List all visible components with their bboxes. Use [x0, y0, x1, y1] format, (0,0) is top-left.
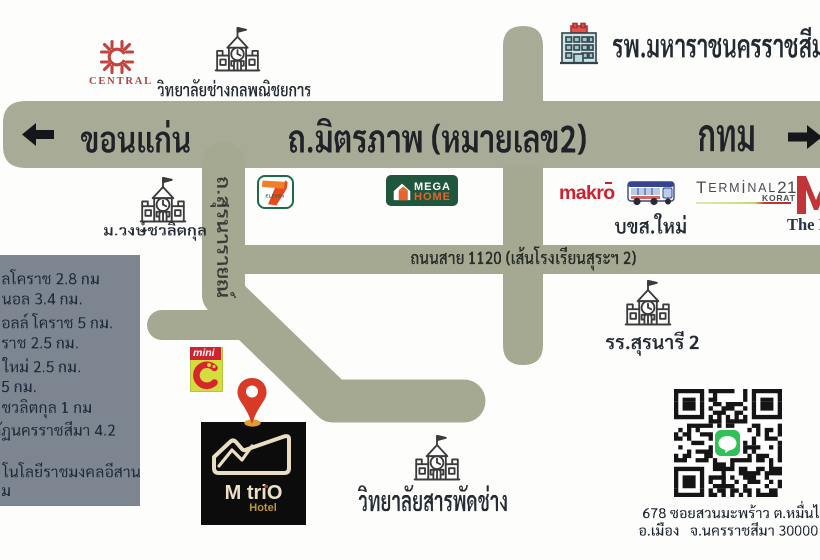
svg-text:ELEVEn: ELEVEn: [266, 194, 285, 199]
